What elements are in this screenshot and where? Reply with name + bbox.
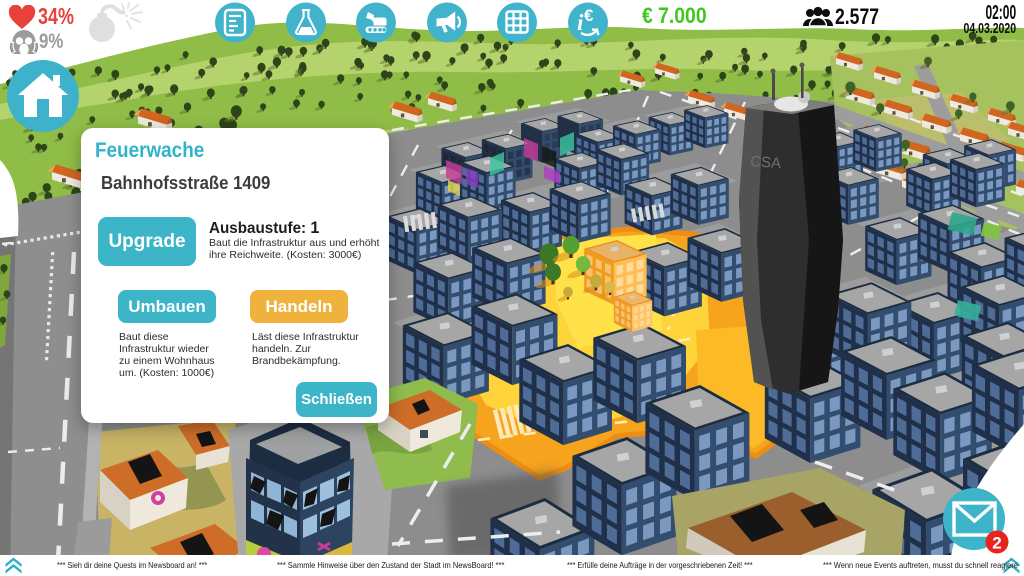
svg-text:CSA: CSA [750,153,782,172]
svg-text:2: 2 [992,534,1001,553]
svg-text:€: € [584,6,594,25]
svg-text:i: i [577,10,584,35]
